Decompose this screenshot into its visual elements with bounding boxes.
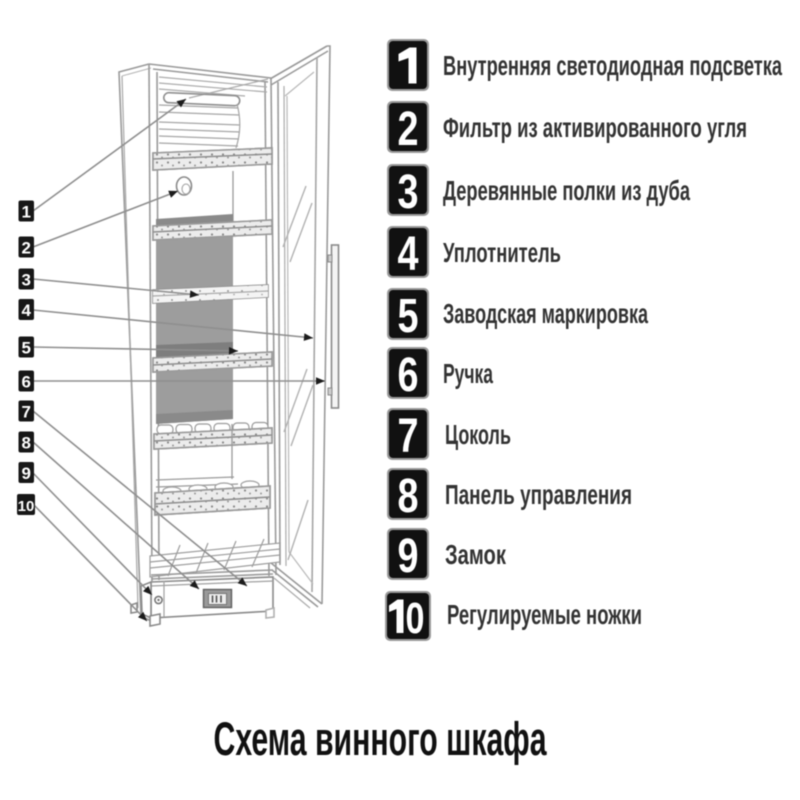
svg-text:3: 3: [398, 166, 419, 219]
svg-text:Уплотнитель: Уплотнитель: [443, 237, 561, 268]
svg-text:Фильтр из активированного угля: Фильтр из активированного угля: [443, 112, 747, 143]
svg-text:6: 6: [398, 349, 419, 402]
svg-text:10: 10: [18, 498, 35, 515]
svg-text:6: 6: [21, 373, 30, 392]
svg-text:0: 0: [406, 594, 425, 643]
svg-text:4: 4: [398, 228, 419, 281]
svg-text:7: 7: [21, 403, 30, 422]
svg-text:Замок: Замок: [445, 539, 507, 570]
svg-text:Панель управления: Панель управления: [445, 479, 632, 510]
svg-text:9: 9: [398, 530, 419, 583]
svg-text:8: 8: [21, 434, 30, 453]
svg-text:Внутренняя светодиодная подсве: Внутренняя светодиодная подсветка: [443, 50, 782, 81]
svg-text:5: 5: [398, 290, 419, 343]
svg-text:3: 3: [21, 271, 30, 290]
svg-text:2: 2: [21, 239, 30, 258]
svg-text:9: 9: [21, 464, 30, 483]
svg-text:7: 7: [398, 410, 419, 463]
svg-text:Регулируемые ножки: Регулируемые ножки: [447, 599, 642, 630]
svg-text:Цоколь: Цоколь: [445, 419, 511, 450]
svg-text:8: 8: [398, 470, 419, 523]
svg-text:5: 5: [21, 339, 30, 358]
svg-text:1: 1: [21, 203, 30, 222]
svg-text:Заводская маркировка: Заводская маркировка: [443, 298, 648, 329]
svg-text:Ручка: Ручка: [443, 358, 493, 389]
svg-text:4: 4: [21, 301, 31, 320]
svg-text:Схема винного шкафа: Схема винного шкафа: [214, 712, 548, 765]
svg-text:2: 2: [398, 103, 419, 156]
svg-text:Деревянные полки из дуба: Деревянные полки из дуба: [443, 175, 690, 206]
